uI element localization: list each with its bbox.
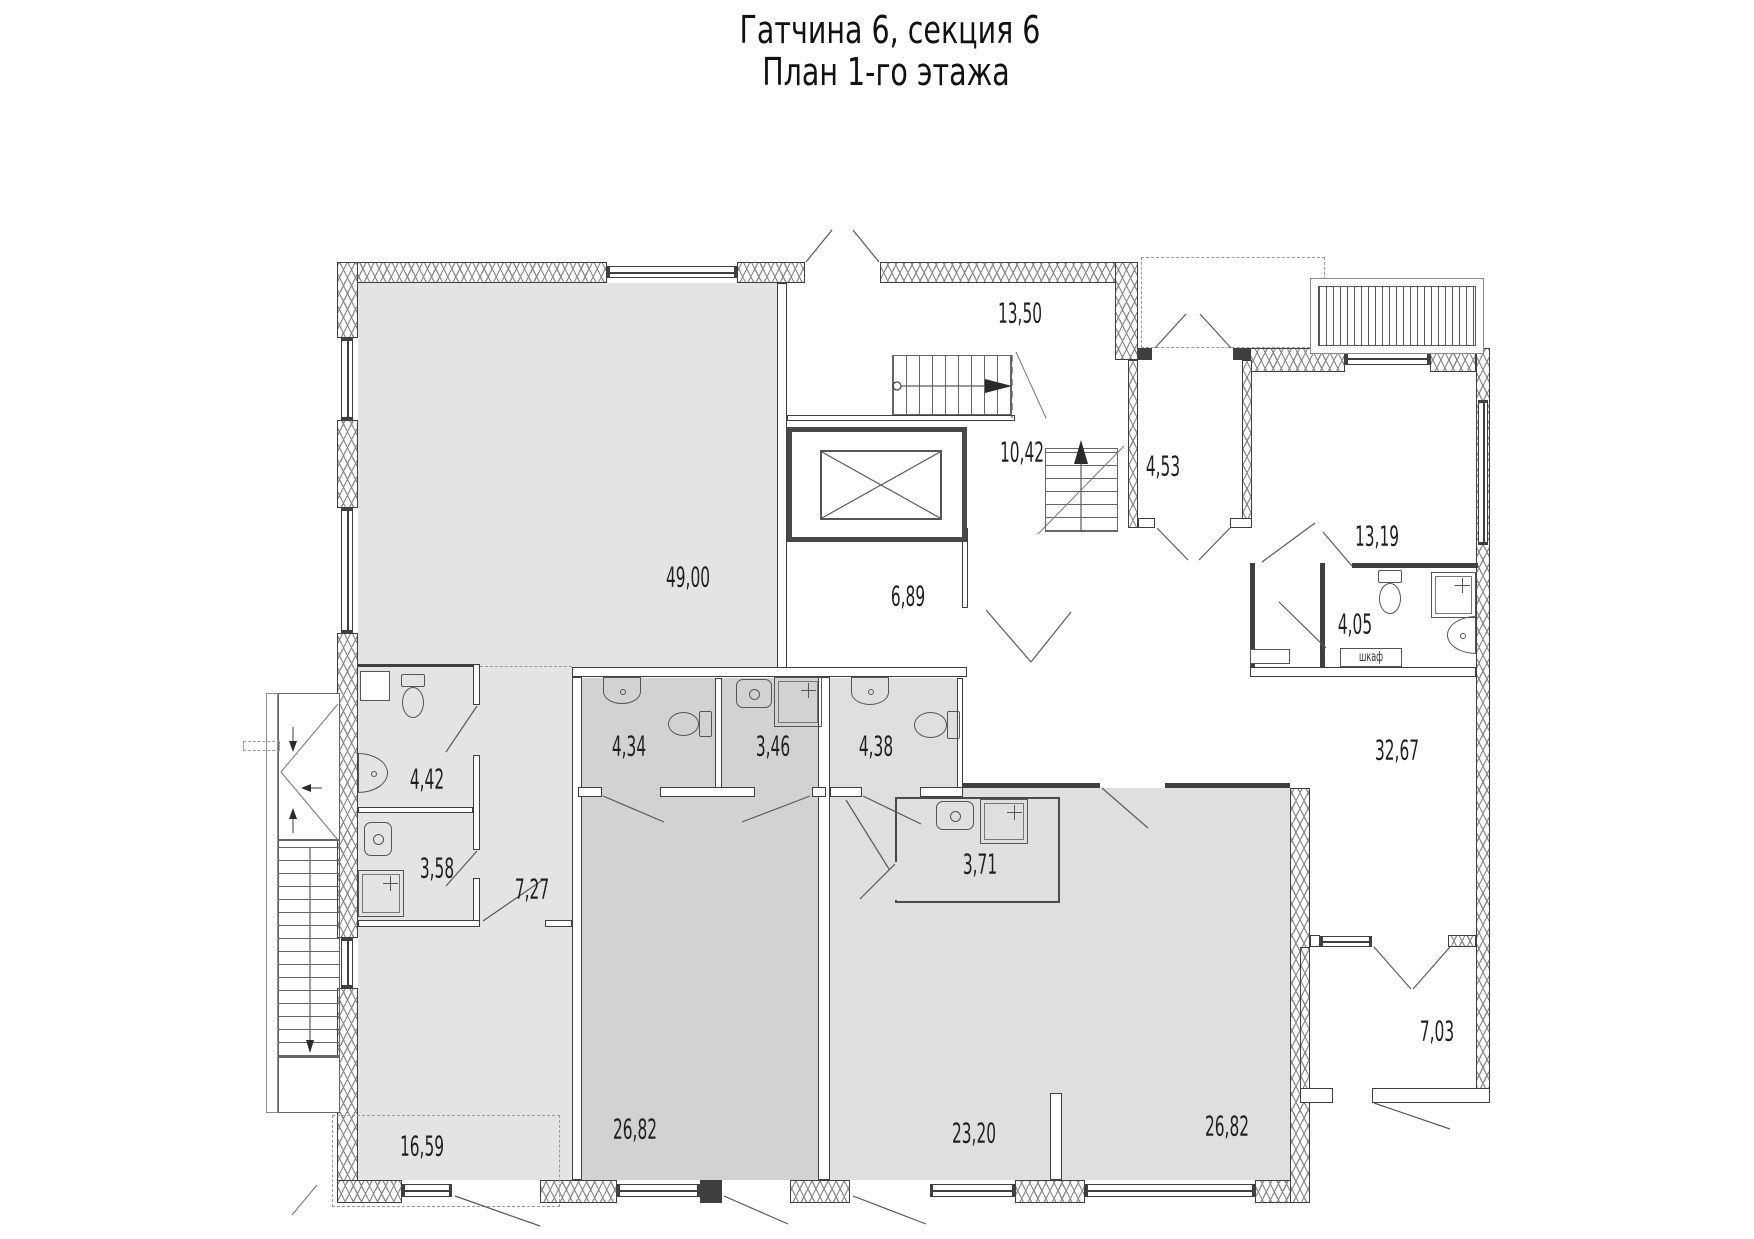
entrance-ramp	[1318, 286, 1476, 346]
exterior-wall	[1015, 1180, 1085, 1203]
partition	[358, 920, 480, 927]
floor-plan-page: { "title": { "line1": "Гатчина 6, секция…	[0, 0, 1754, 1239]
wall-segment	[1310, 935, 1320, 947]
sink-icon	[364, 822, 392, 856]
wall-segment	[1320, 568, 1325, 667]
door-opening	[893, 862, 899, 900]
exterior-stair-railing	[266, 693, 278, 1113]
balcony-wall	[1448, 935, 1476, 947]
window	[341, 338, 353, 420]
staircase-13-50	[892, 355, 1012, 415]
exterior-wall	[337, 262, 607, 283]
room-area-label-4-38: 4,38	[859, 730, 893, 763]
wall-segment	[1230, 518, 1252, 528]
corridor-wall	[963, 783, 1100, 788]
wall-segment	[572, 667, 967, 677]
zone-16-59-dashed	[332, 1115, 560, 1207]
unit-separating-wall	[818, 677, 830, 1180]
window	[1085, 1184, 1255, 1197]
dashed-stub	[243, 741, 280, 751]
exterior-wall	[790, 1180, 850, 1203]
window	[1320, 936, 1372, 947]
closet-box-small	[1250, 649, 1290, 664]
room-49-fill	[358, 283, 777, 667]
partition	[1050, 1093, 1062, 1180]
wall-segment	[1138, 348, 1152, 360]
partition	[660, 787, 755, 797]
exterior-wall	[737, 262, 805, 283]
room-area-label-3-46: 3,46	[756, 730, 790, 763]
plan-title: Гатчина 6, секция 6	[740, 8, 1041, 52]
room-area-label-26-82-b: 26,82	[1205, 1110, 1249, 1143]
exterior-wall	[337, 262, 358, 338]
partition	[545, 920, 572, 927]
window	[930, 1184, 1015, 1197]
washbasin-icon	[1447, 616, 1476, 654]
partition	[812, 787, 826, 797]
exterior-wall	[337, 420, 358, 508]
window	[607, 266, 737, 278]
toilet-icon	[914, 710, 960, 740]
window	[341, 508, 353, 633]
wall-segment	[1352, 563, 1478, 568]
window	[341, 938, 353, 988]
exterior-wall	[1115, 262, 1138, 360]
room-area-label-6-89: 6,89	[891, 580, 925, 613]
elevator-cabin	[820, 450, 942, 520]
wall-segment	[1250, 667, 1476, 677]
shower-tray-icon	[1431, 572, 1476, 618]
room-area-label-23-20: 23,20	[952, 1117, 996, 1150]
room-area-label-4-05: 4,05	[1338, 608, 1372, 641]
exterior-stair-landing-low	[278, 1057, 340, 1113]
shower-tray-icon	[358, 870, 404, 917]
partition	[473, 664, 480, 705]
room-area-label-32-67: 32,67	[1375, 734, 1419, 767]
washbasin-icon	[851, 677, 889, 705]
staircase-10-42	[1045, 448, 1118, 532]
washbasin-icon	[603, 677, 641, 704]
closet-box: шкаф	[1340, 648, 1402, 667]
window	[617, 1184, 700, 1197]
toilet-icon	[400, 674, 426, 718]
room-area-label-7-27: 7,27	[515, 873, 549, 906]
window	[1478, 400, 1488, 545]
wall-pier	[700, 1180, 722, 1203]
wall-segment	[1138, 518, 1155, 528]
sink-icon	[936, 801, 974, 830]
corridor-wall	[1165, 783, 1290, 788]
partition	[358, 807, 473, 813]
room-area-label-16-59: 16,59	[400, 1130, 444, 1163]
room-area-label-4-42: 4,42	[410, 763, 444, 796]
shower-tray-icon	[980, 799, 1028, 844]
zone-boundary-dashed	[480, 666, 572, 667]
exterior-wall	[337, 633, 358, 938]
balcony-wall	[1372, 1088, 1490, 1103]
room-area-label-13-19: 13,19	[1355, 520, 1399, 553]
exterior-stair-landing	[278, 693, 340, 840]
exterior-wall	[880, 262, 1138, 283]
exterior-staircase	[278, 840, 340, 1057]
room-area-label-3-71: 3,71	[963, 848, 997, 881]
room-area-label-4-34: 4,34	[612, 730, 646, 763]
sink-icon	[736, 679, 772, 708]
room-area-label-26-82-a: 26,82	[613, 1113, 657, 1146]
closet-label: шкаф	[1352, 649, 1389, 666]
room-area-label-49-00: 49,00	[666, 561, 710, 594]
tambour-wall	[1242, 360, 1252, 528]
partition	[358, 664, 480, 667]
room-area-label-13-50: 13,50	[998, 297, 1042, 330]
partition	[715, 678, 722, 790]
plan-subtitle: План 1-го этажа	[762, 50, 1010, 94]
room-area-label-7-03: 7,03	[1420, 1015, 1454, 1048]
unit-separating-wall	[572, 677, 582, 1180]
balcony-wall	[1300, 1088, 1333, 1103]
partition	[578, 787, 602, 797]
balcony-wall	[1300, 947, 1310, 1092]
partition	[830, 787, 862, 797]
stairwell-wall	[777, 283, 787, 677]
room-area-label-3-58: 3,58	[420, 852, 454, 885]
utility-box	[360, 671, 390, 701]
tambour-wall	[1128, 360, 1138, 528]
entrance-canopy-dashed	[1141, 257, 1325, 348]
room-area-label-10-42: 10,42	[1000, 436, 1044, 469]
room-area-label-4-53: 4,53	[1146, 450, 1180, 483]
wall-segment	[787, 415, 1015, 421]
shower-tray-icon	[774, 677, 822, 727]
toilet-icon	[1377, 570, 1403, 614]
partition	[920, 787, 963, 797]
toilet-icon	[668, 710, 712, 738]
partition	[473, 755, 480, 850]
